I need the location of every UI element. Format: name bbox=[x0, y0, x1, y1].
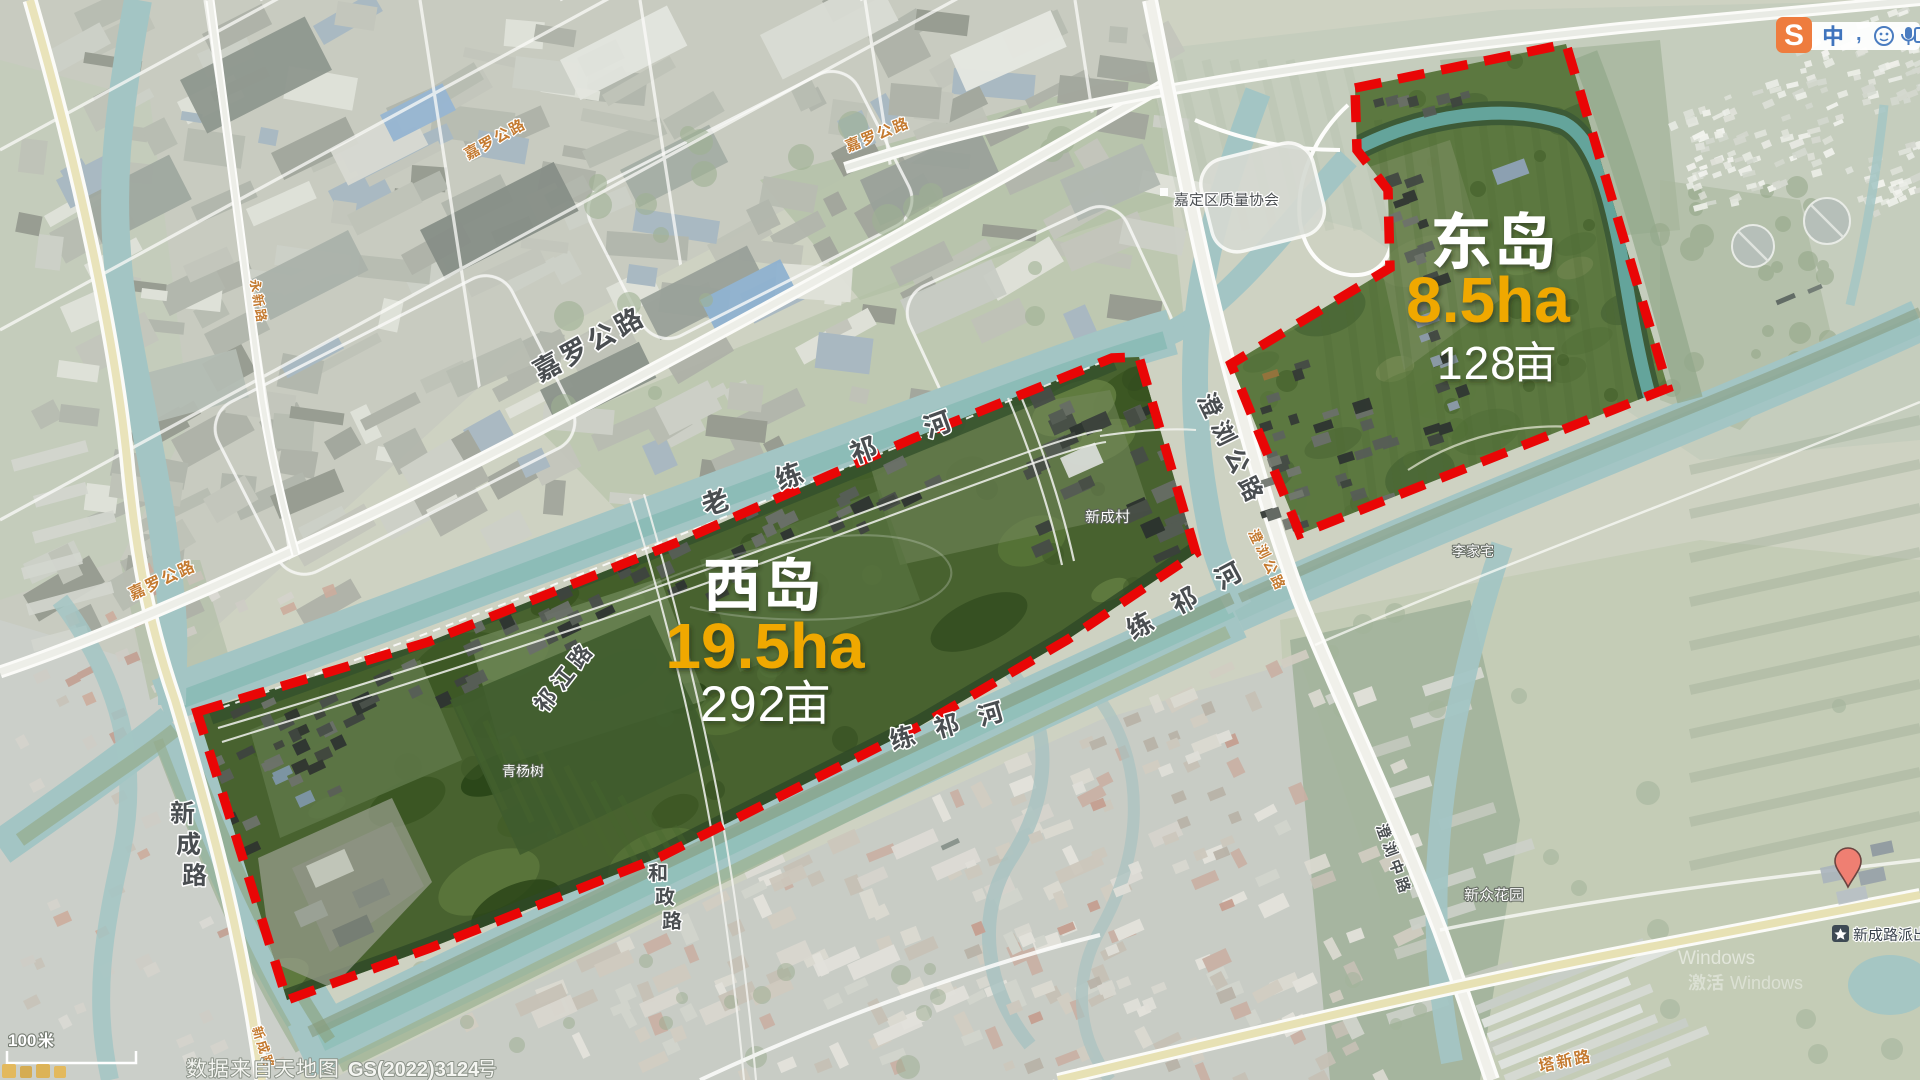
svg-text:292: 292 bbox=[700, 676, 786, 732]
svg-text:100: 100 bbox=[8, 1031, 36, 1050]
svg-text:8.5ha: 8.5ha bbox=[1406, 264, 1570, 336]
svg-text:GS(2022)3124: GS(2022)3124 bbox=[348, 1059, 480, 1080]
svg-text:S: S bbox=[1784, 19, 1804, 52]
svg-text:,: , bbox=[1856, 23, 1862, 45]
svg-text:Windows: Windows bbox=[1678, 948, 1755, 969]
svg-text:Windows: Windows bbox=[1730, 973, 1803, 993]
svg-text:128: 128 bbox=[1437, 337, 1517, 389]
svg-text:19.5ha: 19.5ha bbox=[665, 610, 865, 682]
